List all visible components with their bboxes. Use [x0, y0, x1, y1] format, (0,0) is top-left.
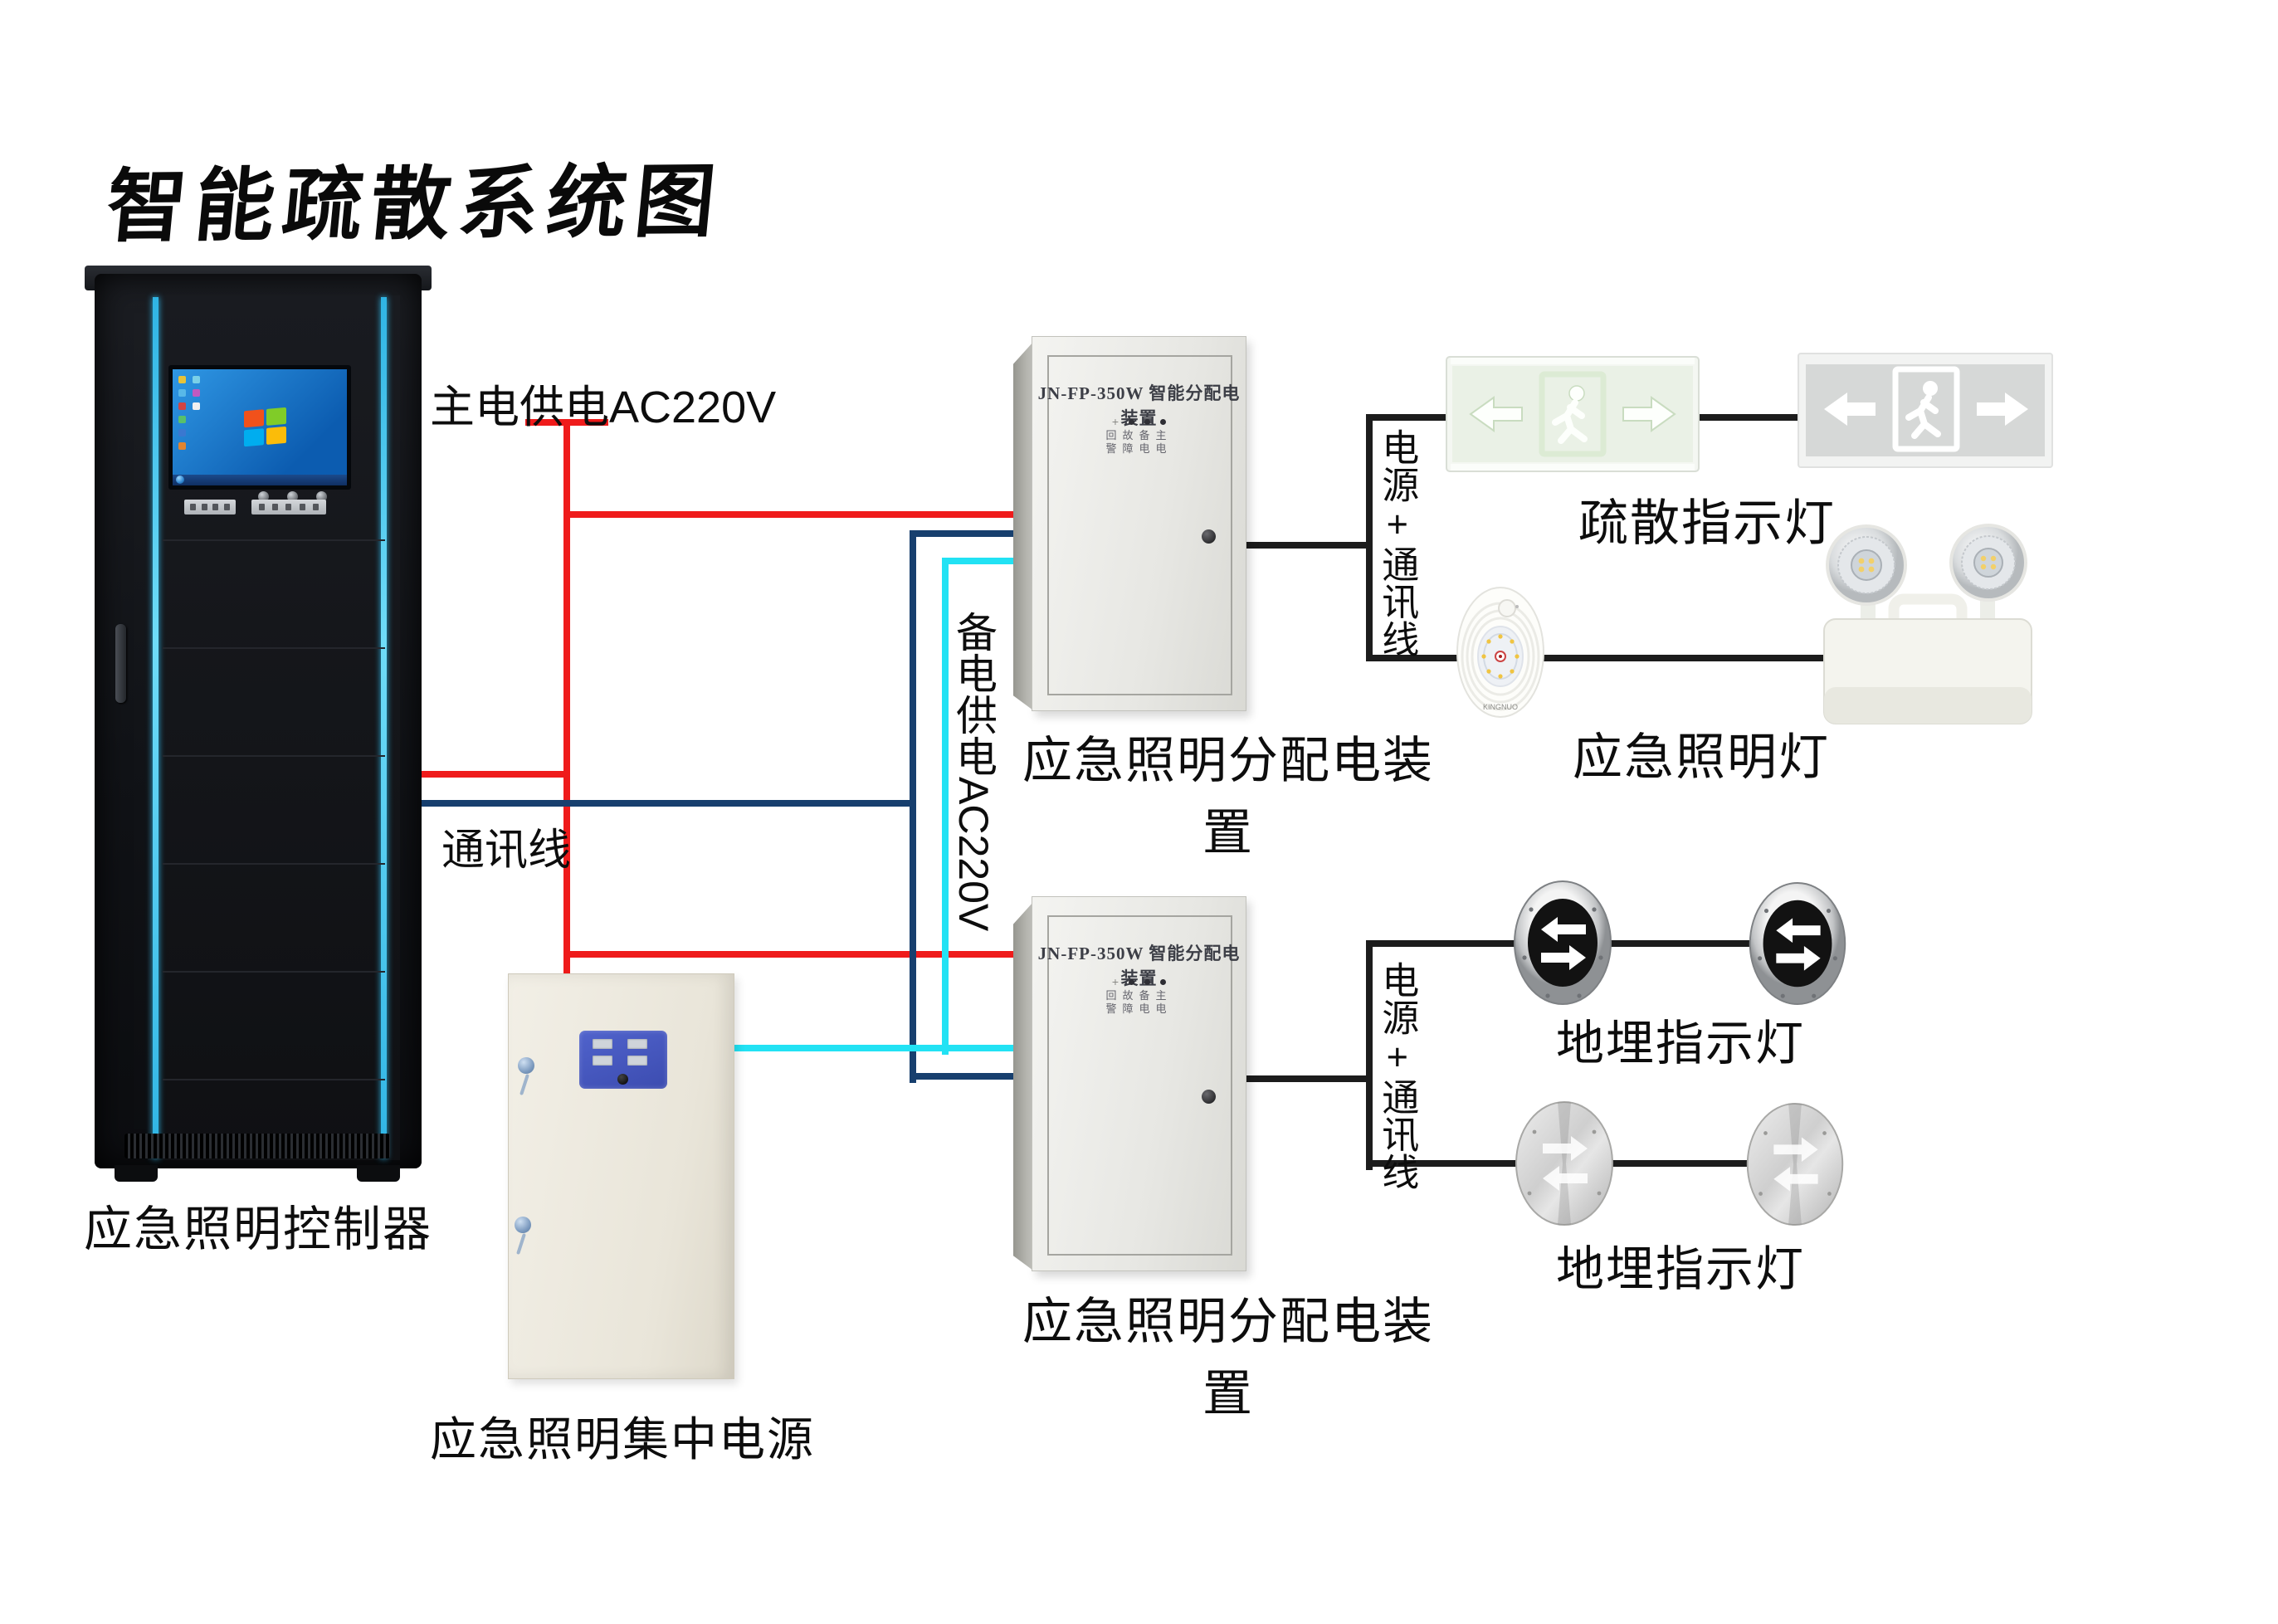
distribution-box-2-lock [1202, 1090, 1216, 1104]
wire-roundlight-to-twinlight [1540, 655, 1826, 661]
wire-box2-to-bracket2 [1243, 1075, 1373, 1082]
wire-box1-to-bracket1 [1243, 542, 1373, 549]
lamp-head-right [1951, 525, 2026, 600]
rack-led-strip-right [381, 297, 387, 1158]
windows-start-orb [176, 475, 184, 484]
rack-button-panel-right [251, 500, 326, 515]
wire-sign1-to-sign2 [1696, 414, 1798, 421]
wire-bracket2-to-groundlight1 [1366, 940, 1515, 947]
ground-light-1b [1748, 881, 1847, 1006]
label-main-power: 主电供电AC220V [430, 370, 776, 436]
label-power-comm-2: 电源+通讯线 [1378, 961, 1417, 1190]
page-title: 智能疏散系统图 [102, 137, 729, 257]
rack-vent [124, 1134, 390, 1158]
wire-groundlight2-between [1610, 1160, 1748, 1167]
caption-evac-signs: 疏散指示灯 [1558, 483, 1856, 555]
wire-main-power-to-box1 [567, 511, 1032, 518]
wire-comm-to-box1 [910, 530, 1032, 537]
distribution-box-2: JN-FP-350W 智能分配电装置 + 回故备主 警障电电 [1032, 896, 1246, 1271]
wire-groundlight1-between [1610, 940, 1751, 947]
evacuation-exit-sign-1 [1446, 356, 1700, 472]
windows-desktop-screen [173, 369, 347, 485]
distribution-box-1-lock [1202, 529, 1216, 544]
rack-led-strip-left [153, 297, 159, 1158]
windows-logo-icon [244, 407, 287, 448]
label-comm-line: 通讯线 [441, 815, 571, 877]
wire-main-power-to-rack [419, 771, 570, 778]
caption-ground-lights-2: 地埋指示灯 [1531, 1230, 1830, 1300]
wire-backup-vertical [942, 558, 949, 1055]
rack-button-panel-left [184, 500, 236, 515]
wire-comm-vertical [910, 530, 916, 1083]
psu-knob [617, 1074, 628, 1085]
wire-comm-to-box2 [910, 1073, 1032, 1080]
round-emergency-light: KINGNUO [1456, 585, 1545, 719]
label-backup-power: 备电供电AC220V [953, 611, 994, 931]
psu-keylock-bottom [515, 1217, 531, 1233]
ground-light-2a [1515, 1100, 1614, 1227]
caption-controller: 应急照明控制器 [84, 1190, 432, 1260]
test-button [1499, 600, 1515, 617]
windows-taskbar [173, 475, 347, 485]
caption-ground-lights-1: 地埋指示灯 [1531, 1004, 1830, 1074]
psu-keylock-top [518, 1057, 534, 1074]
wire-comm-from-rack [419, 800, 916, 807]
wire-bracket1-to-sign1 [1366, 414, 1449, 421]
rack-monitor [168, 365, 351, 490]
psu-control-panel [579, 1031, 667, 1089]
brand-text: KINGNUO [1483, 703, 1518, 711]
evacuation-exit-sign-2 [1798, 353, 2053, 468]
rack-door-handle [115, 624, 126, 703]
caption-dist-box-1: 应急照明分配电装置 [1012, 720, 1444, 865]
wire-backup-psu-to-box2 [730, 1045, 1032, 1051]
label-power-comm-1: 电源+通讯线 [1378, 428, 1417, 657]
caption-central-power: 应急照明集中电源 [423, 1402, 822, 1470]
ground-light-2b [1745, 1102, 1845, 1227]
caption-dist-box-2: 应急照明分配电装置 [1012, 1281, 1444, 1426]
wire-main-power-vertical [563, 419, 570, 977]
distribution-box-1: JN-FP-350W 智能分配电装置 + 回故备主 警障电电 [1032, 336, 1246, 711]
carry-handle [1894, 599, 1962, 621]
ground-light-1a [1513, 880, 1612, 1006]
wire-main-power-to-box2 [567, 951, 1032, 958]
caption-emergency-lights: 应急照明灯 [1552, 717, 1851, 789]
wire-bracket2-vertical [1366, 940, 1373, 1170]
wire-bracket1-vertical [1366, 414, 1373, 661]
